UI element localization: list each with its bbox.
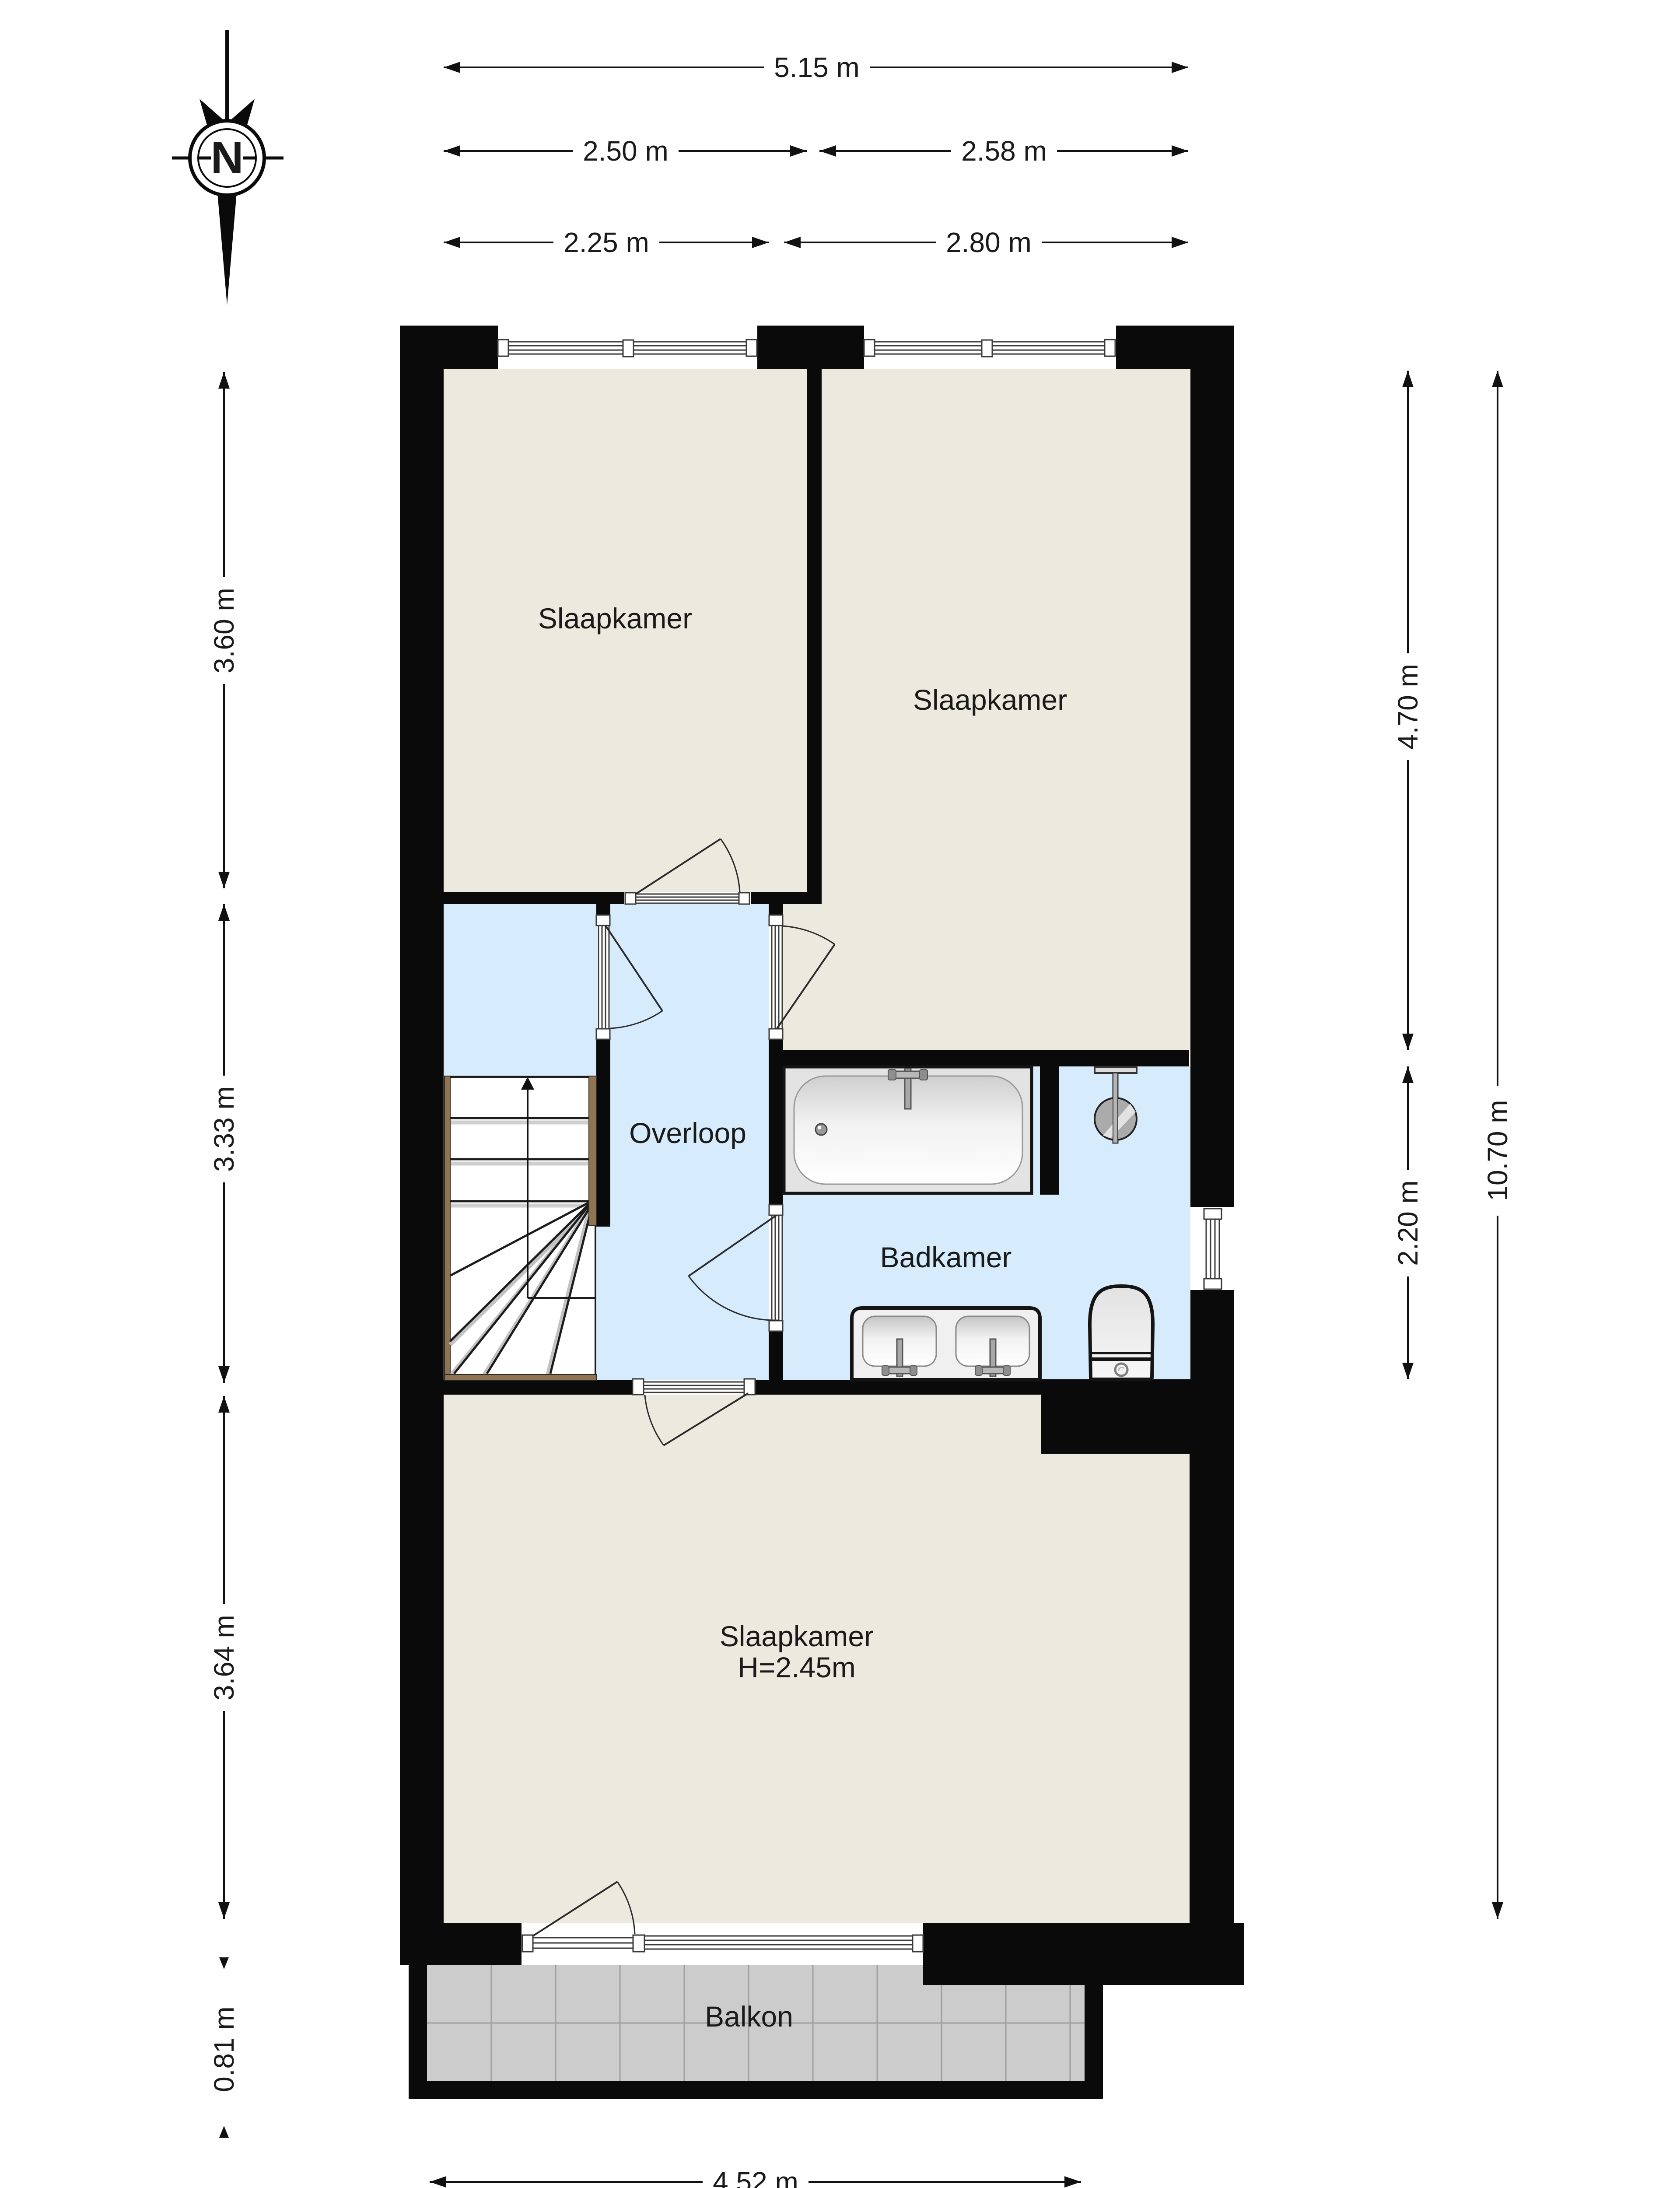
svg-text:2.50 m: 2.50 m [583,135,668,167]
svg-text:Badkamer: Badkamer [880,1241,1012,1273]
svg-text:Overloop: Overloop [629,1117,746,1149]
svg-text:10.70 m: 10.70 m [1482,1100,1513,1201]
svg-text:4.52 m: 4.52 m [713,2166,798,2188]
svg-text:N: N [210,133,243,183]
svg-text:3.60 m: 3.60 m [208,588,240,673]
svg-text:Balkon: Balkon [705,2000,793,2033]
svg-text:2.80 m: 2.80 m [946,227,1032,258]
svg-text:H=2.45m: H=2.45m [738,1651,856,1683]
svg-text:3.64 m: 3.64 m [208,1615,240,1701]
svg-text:0.81 m: 0.81 m [208,2006,240,2092]
svg-text:Slaapkamer: Slaapkamer [913,684,1067,716]
svg-text:4.70 m: 4.70 m [1392,664,1424,750]
svg-text:2.58 m: 2.58 m [961,135,1047,167]
svg-text:5.15 m: 5.15 m [774,52,860,83]
svg-text:Slaapkamer: Slaapkamer [538,602,692,635]
svg-text:2.20 m: 2.20 m [1392,1180,1424,1266]
svg-text:3.33 m: 3.33 m [208,1086,240,1172]
svg-text:2.25 m: 2.25 m [563,227,649,258]
svg-text:Slaapkamer: Slaapkamer [720,1620,874,1652]
